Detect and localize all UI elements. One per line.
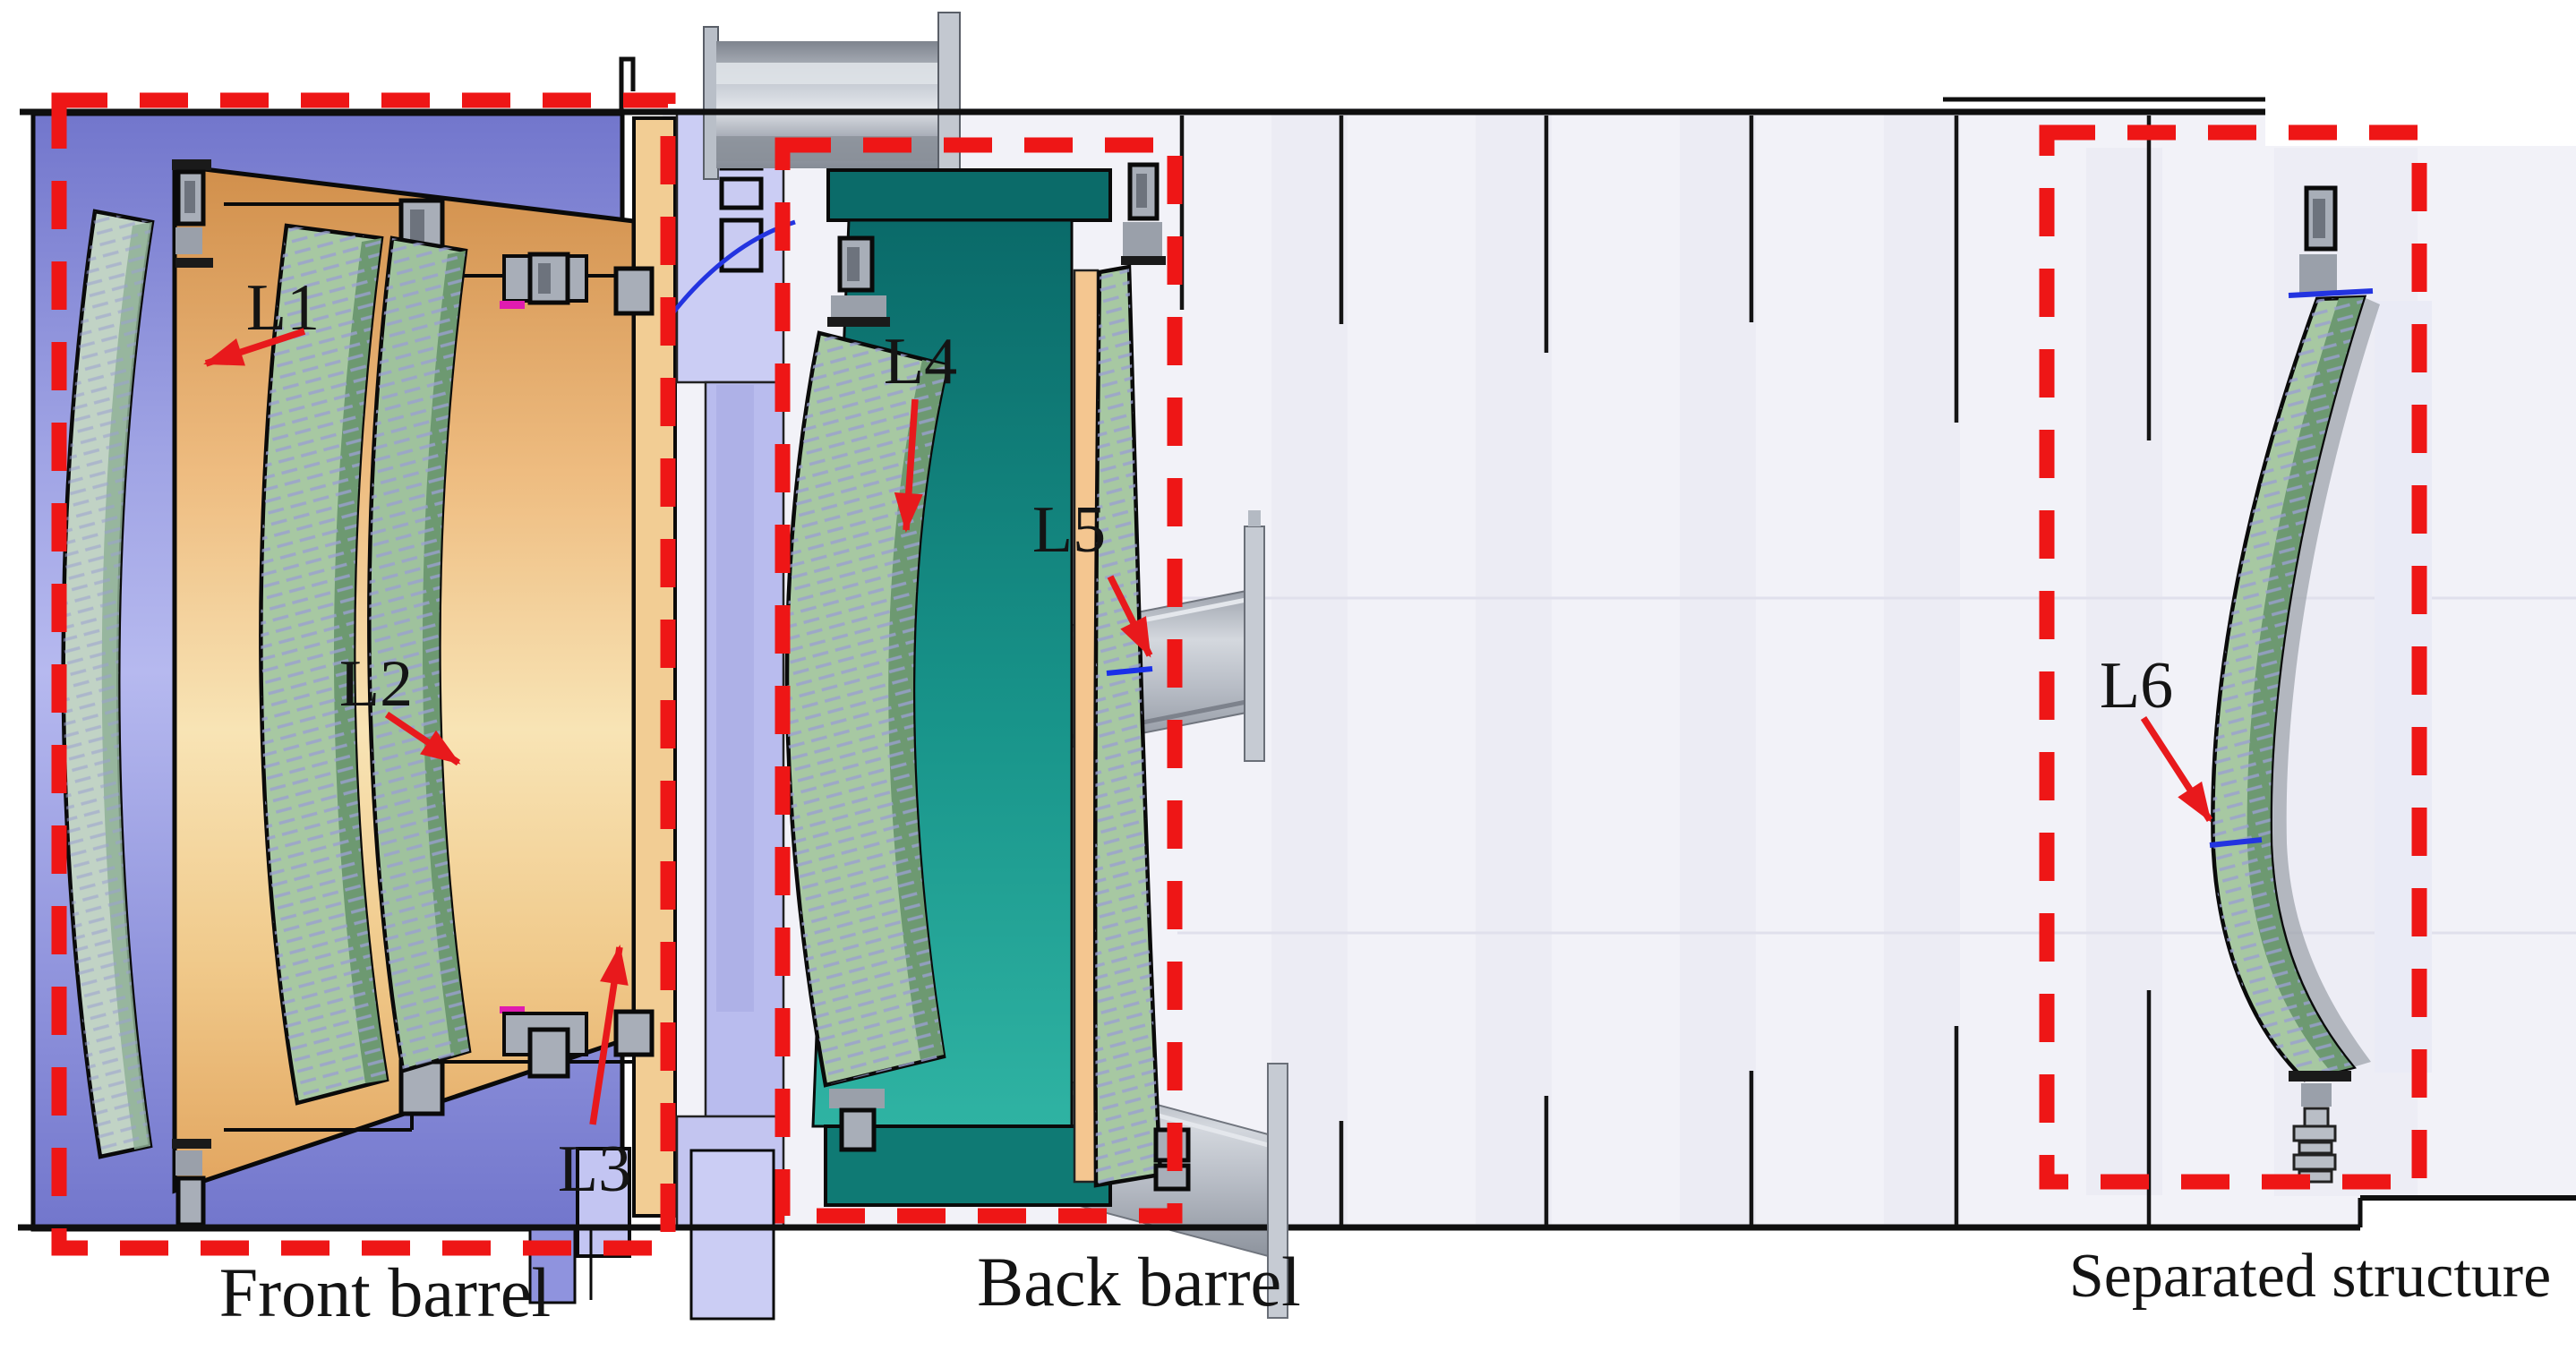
l5-top-fastener-core [1136, 174, 1147, 208]
trunnion-highlight [716, 63, 951, 84]
l3-top-fastener-core [538, 263, 551, 294]
upper-strut-flange-cap [1248, 510, 1261, 526]
l1-bottom-bracket [175, 1150, 202, 1176]
connector-foot [691, 1150, 774, 1319]
l4-top-bracket [831, 295, 886, 317]
l6-bottom-bracket [2301, 1083, 2332, 1107]
l4-top-fastener-core [847, 247, 860, 281]
l5-top-retainer [1121, 256, 1166, 265]
lens-l6-label: L6 [2100, 649, 2173, 722]
connector-column-shade [716, 385, 754, 1012]
l1-top-bracket [175, 227, 202, 254]
l1-bottom-fastener [178, 1178, 203, 1225]
l4-top-retainer [827, 317, 890, 327]
l6-top-fastener-core [2313, 199, 2325, 238]
l3-bottom-fastener [530, 1030, 568, 1076]
lens-l5-label: L5 [1032, 493, 1106, 567]
connector-fastener-3 [722, 220, 761, 270]
l3-flange-fastener-bottom [616, 1012, 652, 1055]
trunnion-left-flange [704, 27, 718, 179]
l1-top-retainer [175, 258, 213, 268]
upper-strut-flange [1245, 526, 1264, 761]
l6-spring-coil-2 [2299, 1142, 2332, 1153]
lens-l3-label: L3 [558, 1133, 631, 1206]
l6-spring-coil-3 [2294, 1155, 2335, 1169]
lens-assembly-diagram: L1 L2 L3 L4 L5 L6 Front barrel Back barr… [0, 0, 2576, 1368]
l3-flange-fastener-top [616, 269, 652, 313]
l1-top-fastener-core [184, 181, 195, 213]
l5-top-bracket [1123, 222, 1162, 256]
back-barrel-label: Back barrel [977, 1243, 1301, 1321]
lens-assembly-figure: L1 L2 L3 L4 L5 L6 Front barrel Back barr… [0, 0, 2576, 1368]
l6-top-bracket [2299, 254, 2337, 294]
l1-bottom-retainer [172, 1139, 211, 1149]
l6-spring-coil-1 [2294, 1126, 2335, 1141]
l1-top-cap-bar [172, 159, 211, 170]
front-barrel-label: Front barrel [219, 1253, 551, 1331]
l2-top-seal-mark [500, 301, 525, 309]
trunnion-shadow [716, 136, 951, 161]
separated-structure-label: Separated structure [2069, 1242, 2551, 1311]
l4-bottom-fastener [842, 1110, 874, 1150]
l4-bottom-bracket [829, 1089, 885, 1108]
l6-bottom-retainer [2289, 1071, 2351, 1082]
lens-l1-label: L1 [246, 271, 320, 345]
lens-l4-label: L4 [884, 325, 957, 398]
l6-spring-shaft [2305, 1108, 2328, 1126]
connector-fastener-2 [722, 179, 761, 208]
teal-top-bar [828, 170, 1110, 220]
lens-l2-label: L2 [339, 647, 413, 721]
